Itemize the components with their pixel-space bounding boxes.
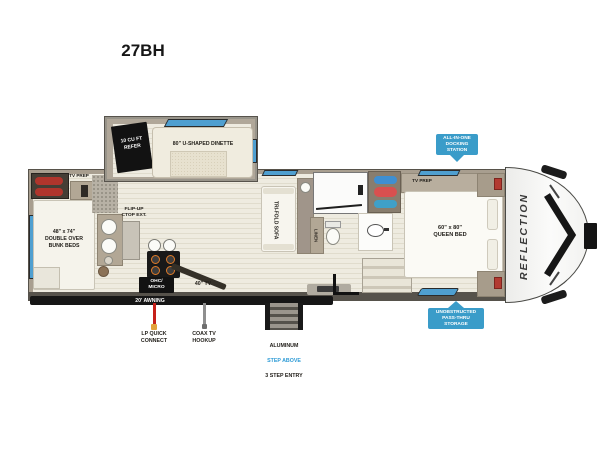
entry-steps-line1: ALUMINUM: [248, 343, 320, 351]
tv-40-label: 40" TV: [184, 281, 222, 288]
sofa-arm: [263, 188, 294, 194]
burner: [151, 266, 160, 275]
toilet-bowl: [326, 228, 340, 245]
entry-handrail: [333, 292, 359, 295]
clothes-item: [374, 187, 397, 197]
burner: [151, 255, 160, 264]
kitchen-sink: [101, 238, 117, 254]
nightstand-item: [494, 178, 502, 190]
brand-logo: REFLECTION: [518, 181, 532, 291]
coax-hookup-line: [203, 303, 206, 325]
entry-steps-line2: STEP ABOVE: [248, 358, 320, 366]
linen-label: LINEN: [313, 222, 319, 250]
docking-station-text: ALL-IN-ONE DOCKING STATION: [436, 134, 478, 155]
toilet-tank: [325, 221, 341, 228]
awning-label: 20' AWNING: [122, 298, 178, 305]
badge-pointer-down: [450, 155, 464, 162]
pass-thru-text: UNOBSTRUCTED PASS-THRU STORAGE: [428, 308, 484, 329]
nightstand: [477, 173, 505, 197]
docking-station-badge: ALL-IN-ONE DOCKING STATION: [436, 134, 478, 162]
shower-door: [316, 204, 362, 210]
coax-hookup-label: COAX TV HOOKUP: [179, 331, 229, 345]
floorplan-27bh: 27BH 20' AWNING TV PREP 48" x 74" DOUBLE…: [0, 0, 600, 450]
lp-quick-connect-label: LP QUICK CONNECT: [129, 331, 179, 345]
shower: [313, 172, 368, 214]
faucet: [384, 228, 389, 231]
dinette-table: [170, 151, 227, 177]
hitch-pin: [584, 223, 597, 249]
clothes-item: [374, 176, 397, 184]
flip-up-label: FLIP-UP CTOP EXT.: [112, 207, 156, 220]
stored-item: [35, 177, 63, 185]
nightstand-item: [494, 277, 502, 289]
shower-head: [358, 185, 363, 195]
sofa-label: TRI-FOLD SOFA: [272, 192, 279, 248]
dinette-window: [164, 119, 228, 127]
pillow: [487, 199, 498, 230]
entry-steps-line3: 3 STEP ENTRY: [248, 373, 320, 381]
bunk-corner-cabinet: [33, 267, 60, 289]
entry-steps-label: ALUMINUM STEP ABOVE 3 STEP ENTRY: [248, 335, 320, 389]
bedroom-rug: [417, 288, 460, 296]
flip-up-counter: [122, 221, 140, 260]
queen-bed-label: 60" x 80" QUEEN BED: [414, 225, 486, 240]
sofa-arm: [263, 244, 294, 250]
lp-quick-connect-tip: [151, 324, 157, 330]
pass-thru-badge: UNOBSTRUCTED PASS-THRU STORAGE: [428, 301, 484, 329]
coax-hookup-tip: [202, 324, 207, 329]
wardrobe: [368, 171, 401, 213]
vanity-sink: [367, 224, 384, 237]
kitchen-sink: [101, 219, 117, 235]
sofa-window: [262, 170, 299, 176]
badge-pointer-up: [448, 301, 464, 308]
small-sink: [104, 256, 113, 265]
page-title: 27BH: [108, 40, 178, 62]
toilet: [325, 221, 342, 247]
stored-item: [35, 188, 63, 196]
tri-fold-sofa: [261, 186, 296, 252]
pillow: [487, 239, 498, 270]
lamp: [300, 182, 311, 193]
clothes-item: [374, 200, 397, 208]
lp-quick-connect-line: [153, 303, 156, 325]
ohc-micro-label: OHC/ MICRO: [139, 279, 174, 292]
dinette-label: 80" U-SHAPED DINETTE: [150, 141, 256, 148]
bunk-bed-label: 48" x 74" DOUBLE OVER BUNK BEDS: [33, 229, 95, 249]
vanity: [358, 213, 393, 251]
nightstand: [477, 271, 505, 297]
bedroom-window: [418, 170, 461, 176]
entry-steps: [265, 303, 303, 330]
cap-chevron-graphic: [544, 183, 578, 287]
trash-bin: [98, 266, 109, 277]
tv-icon: [81, 185, 88, 197]
tv-prep-bedroom-label: TV PREP: [404, 178, 440, 184]
